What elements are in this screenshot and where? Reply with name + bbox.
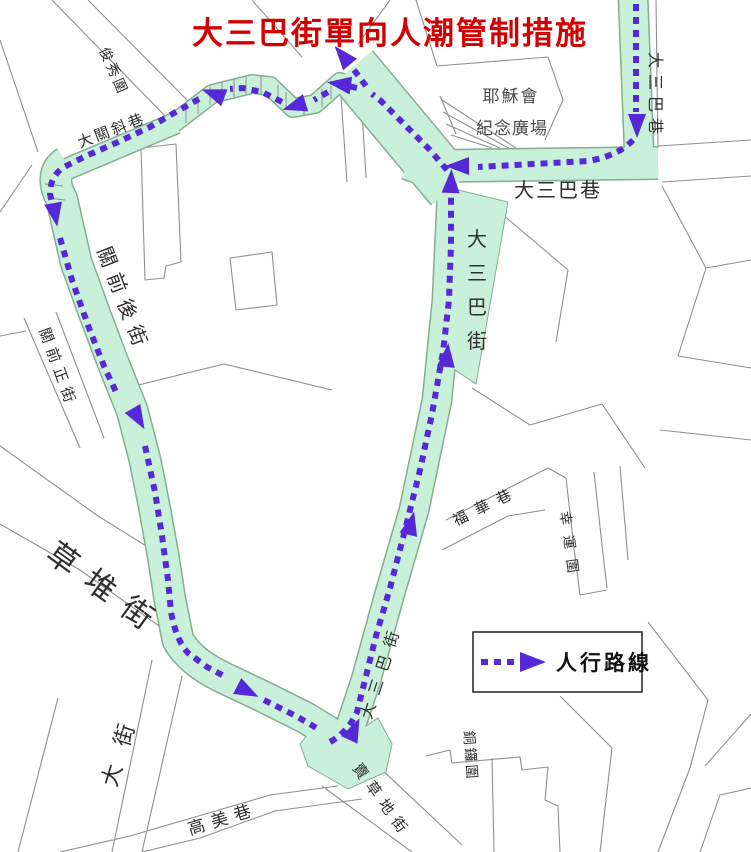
page-title: 大三巴街單向人潮管制措施 [192, 16, 588, 51]
street-label-fuhua: 福華巷 [450, 483, 522, 530]
street-label-gaomei: 高美巷 [186, 800, 260, 839]
corridor-fill [346, 192, 452, 740]
map-canvas: 耶穌會 紀念廣場 大三巴巷 大三巴巷 大三巴街 大三巴街 關前後街 關前正街 草… [0, 0, 751, 852]
street-label-junxiu: 俊秀圍 [95, 45, 130, 98]
street-label-tongluo: 銅鑼圍 [460, 730, 480, 782]
street-label-guanqian-zheng: 關前正街 [35, 326, 80, 411]
street-label-da-street: 大街 [97, 702, 145, 790]
plaza-label-line1: 耶穌會 [483, 87, 540, 106]
corridor-fill [173, 82, 366, 124]
plaza-label-line2: 紀念廣場 [476, 118, 548, 138]
map-stage: 耶穌會 紀念廣場 大三巴巷 大三巴巷 大三巴街 大三巴街 關前後街 關前正街 草… [0, 0, 751, 852]
corridor-fill [438, 163, 658, 166]
legend: 人行路線 [473, 632, 652, 692]
street-label-sanba-lane-top: 大三巴巷 [646, 52, 664, 140]
street-label-xingyun: 幸運圍 [556, 510, 582, 584]
legend-label: 人行路線 [556, 651, 652, 675]
street-label-sanba-lane: 大三巴巷 [514, 179, 602, 202]
